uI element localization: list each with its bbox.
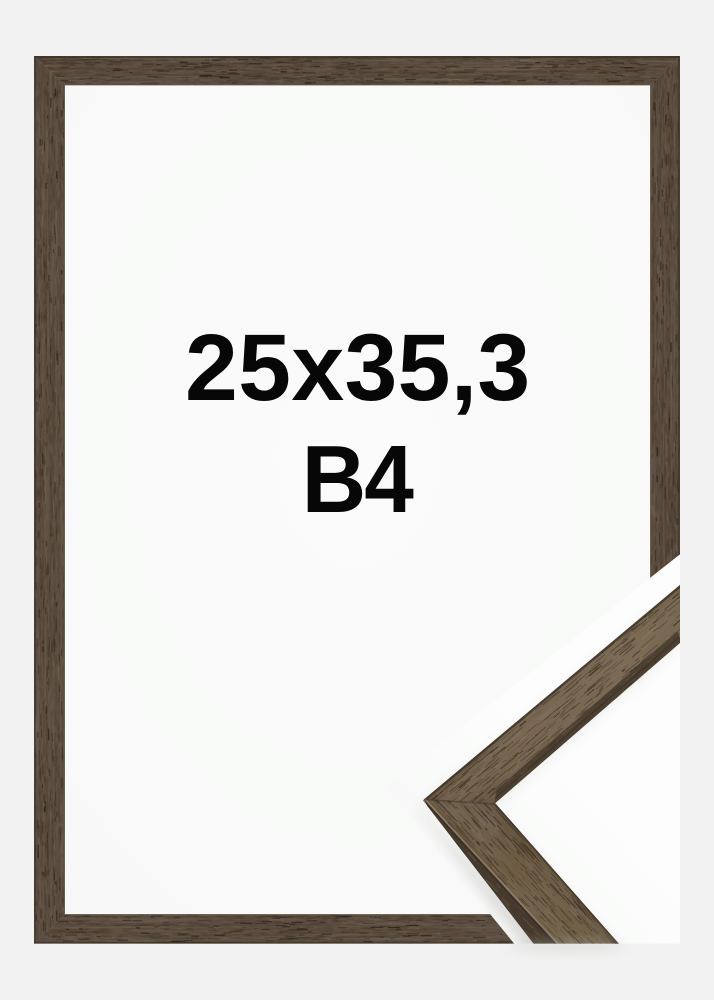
svg-text:B4: B4 [302,425,415,533]
svg-text:25x35,3: 25x35,3 [185,315,531,421]
